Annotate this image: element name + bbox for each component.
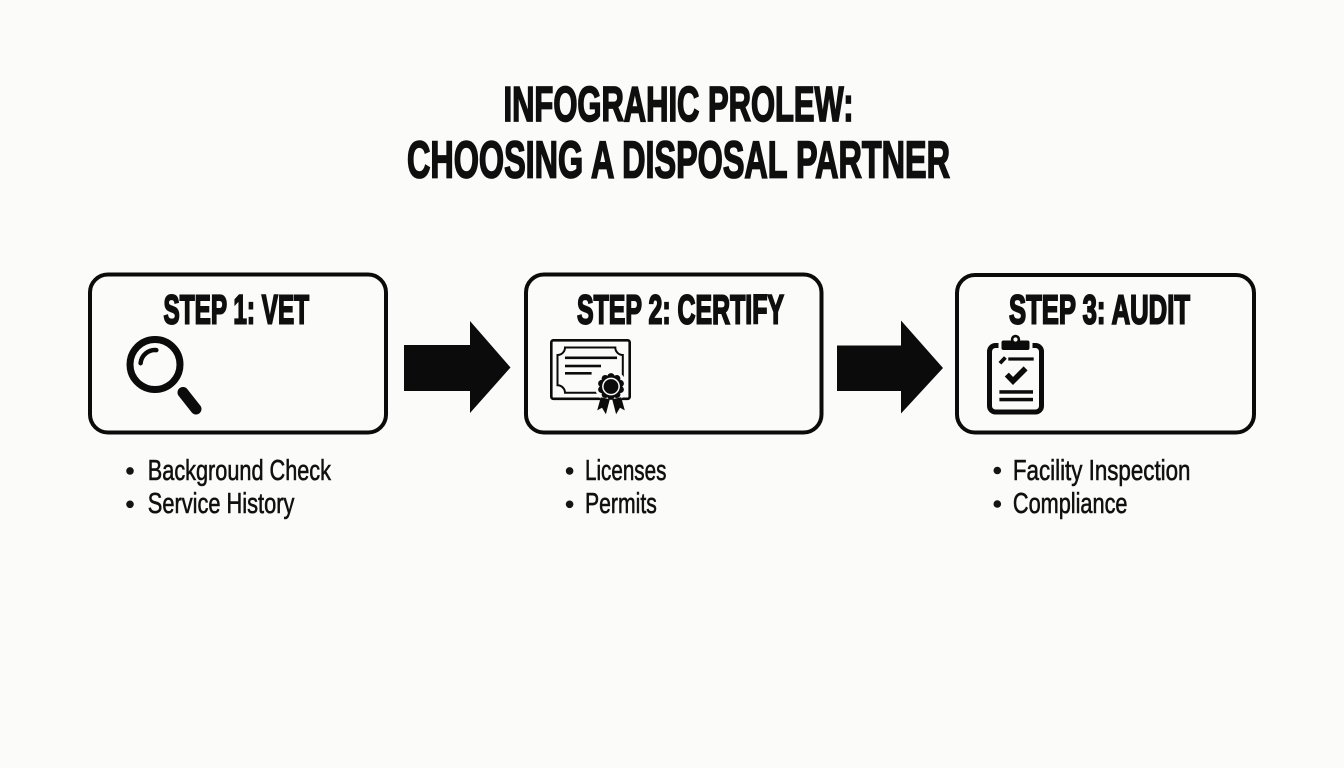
svg-text:Compliance: Compliance — [1013, 488, 1128, 520]
svg-text:Service History: Service History — [148, 488, 295, 520]
svg-text:STEP 2: CERTIFY: STEP 2: CERTIFY — [577, 287, 784, 333]
svg-text:STEP 1: VET: STEP 1: VET — [164, 287, 310, 333]
svg-text:STEP 3: AUDIT: STEP 3: AUDIT — [1009, 287, 1190, 333]
svg-text:Permits: Permits — [585, 488, 657, 520]
svg-text:CHOOSING A DISPOSAL PARTNER: CHOOSING A DISPOSAL PARTNER — [407, 132, 950, 190]
svg-text:INFOGRAHIC PROLEW:: INFOGRAHIC PROLEW: — [504, 78, 854, 132]
svg-text:Facility Inspection: Facility Inspection — [1013, 455, 1191, 487]
svg-text:Background Check: Background Check — [148, 455, 332, 487]
svg-text:Licenses: Licenses — [585, 455, 666, 487]
